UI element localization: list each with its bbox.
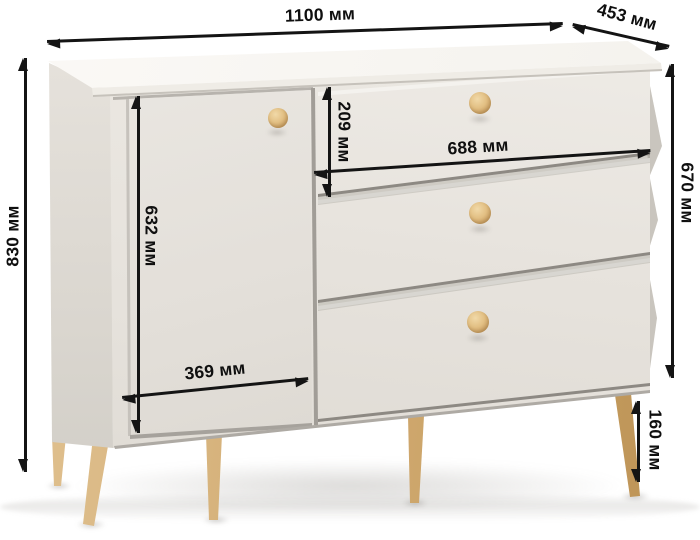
dim-label-leg-height: 160 мм: [645, 409, 666, 470]
dim-label-drawer-height: 209 мм: [334, 101, 355, 162]
drawer-knob-bottom: [467, 311, 489, 333]
dim-arrow-drawer-height: [328, 87, 331, 197]
knob-shadow: [468, 114, 492, 124]
furniture-dimension-diagram: 1100 мм 453 мм 830 мм 670 мм 160 мм 632 …: [0, 0, 700, 540]
door-knob: [268, 108, 288, 128]
dim-arrow-body-height: [671, 64, 674, 378]
knob-shadow: [468, 224, 492, 234]
dim-label-overall-height: 830 мм: [3, 205, 24, 266]
drawer-knob-middle: [469, 202, 491, 224]
dim-label-body-height: 670 мм: [677, 162, 698, 223]
cabinet-drop-shadow: [70, 460, 630, 512]
knob-shadow: [266, 128, 288, 137]
dim-arrow-leg-height: [637, 401, 640, 482]
dim-label-drawer-width: 688 мм: [447, 135, 509, 160]
dim-label-door-height: 632 мм: [141, 205, 162, 266]
dim-label-overall-width: 1100 мм: [285, 3, 356, 26]
dim-arrow-overall-height: [24, 58, 27, 472]
knob-shadow: [466, 333, 490, 343]
drawer-knob-top: [469, 92, 491, 114]
